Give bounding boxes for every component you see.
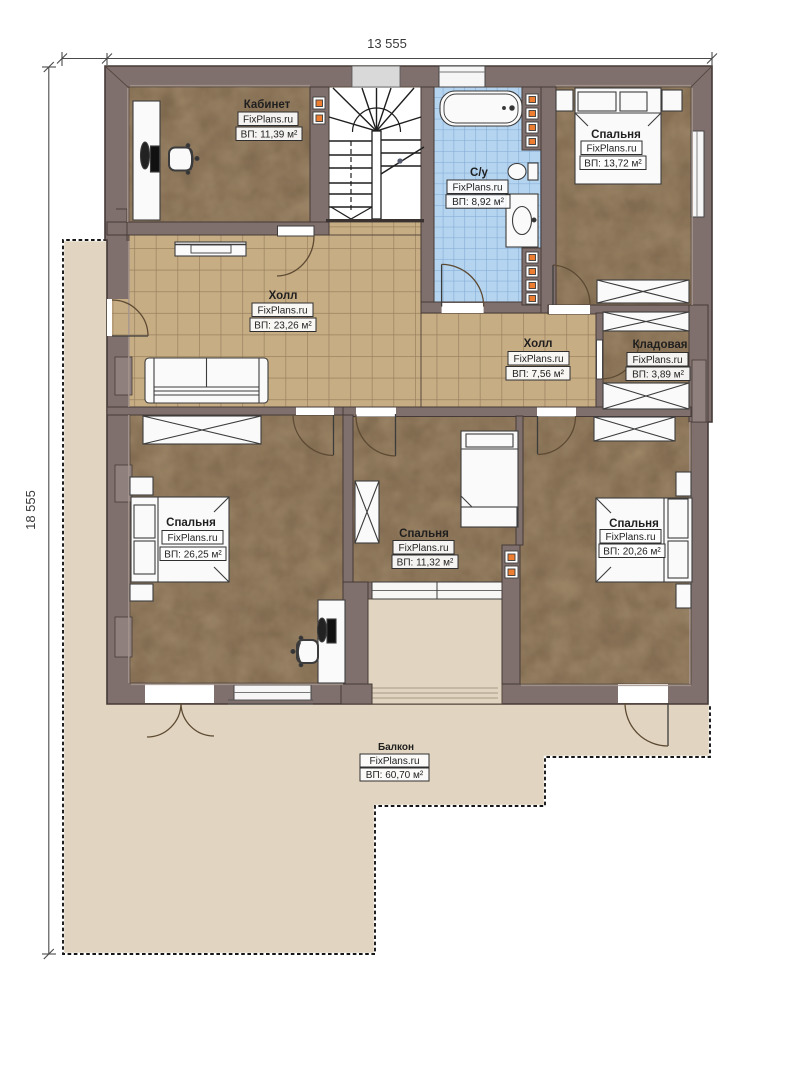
svg-text:FixPlans.ru: FixPlans.ru: [513, 354, 563, 365]
svg-text:FixPlans.ru: FixPlans.ru: [398, 543, 448, 554]
svg-text:ВП: 11,39 м²: ВП: 11,39 м²: [241, 130, 298, 141]
svg-text:С/у: С/у: [470, 167, 489, 179]
svg-text:Холл: Холл: [269, 290, 298, 302]
svg-text:ВП: 7,56 м²: ВП: 7,56 м²: [512, 369, 565, 380]
svg-text:FixPlans.ru: FixPlans.ru: [257, 306, 307, 317]
svg-text:Кладовая: Кладовая: [632, 339, 687, 351]
svg-text:Спальня: Спальня: [399, 528, 449, 540]
svg-text:Спальня: Спальня: [166, 517, 216, 529]
svg-text:FixPlans.ru: FixPlans.ru: [243, 115, 293, 126]
svg-text:ВП: 23,26 м²: ВП: 23,26 м²: [254, 321, 312, 332]
svg-text:Кабинет: Кабинет: [244, 99, 291, 111]
svg-text:ВП: 8,92 м²: ВП: 8,92 м²: [452, 197, 505, 208]
svg-text:FixPlans.ru: FixPlans.ru: [632, 355, 682, 366]
svg-text:Спальня: Спальня: [609, 518, 659, 530]
svg-text:ВП: 26,25 м²: ВП: 26,25 м²: [164, 550, 222, 561]
svg-text:FixPlans.ru: FixPlans.ru: [452, 183, 502, 194]
svg-text:Балкон: Балкон: [378, 742, 414, 753]
svg-text:FixPlans.ru: FixPlans.ru: [586, 144, 636, 155]
svg-text:18 555: 18 555: [23, 490, 38, 530]
svg-text:ВП: 20,26 м²: ВП: 20,26 м²: [603, 547, 661, 558]
svg-text:ВП: 3,89 м²: ВП: 3,89 м²: [632, 370, 685, 381]
svg-text:FixPlans.ru: FixPlans.ru: [167, 533, 217, 544]
svg-text:FixPlans.ru: FixPlans.ru: [369, 756, 419, 767]
svg-text:13 555: 13 555: [367, 36, 407, 51]
svg-text:Спальня: Спальня: [591, 129, 641, 141]
svg-text:ВП: 60,70 м²: ВП: 60,70 м²: [366, 770, 424, 781]
svg-text:Холл: Холл: [524, 338, 553, 350]
svg-text:FixPlans.ru: FixPlans.ru: [605, 532, 655, 543]
svg-text:ВП: 11,32 м²: ВП: 11,32 м²: [397, 558, 454, 569]
svg-text:ВП: 13,72 м²: ВП: 13,72 м²: [584, 159, 642, 170]
